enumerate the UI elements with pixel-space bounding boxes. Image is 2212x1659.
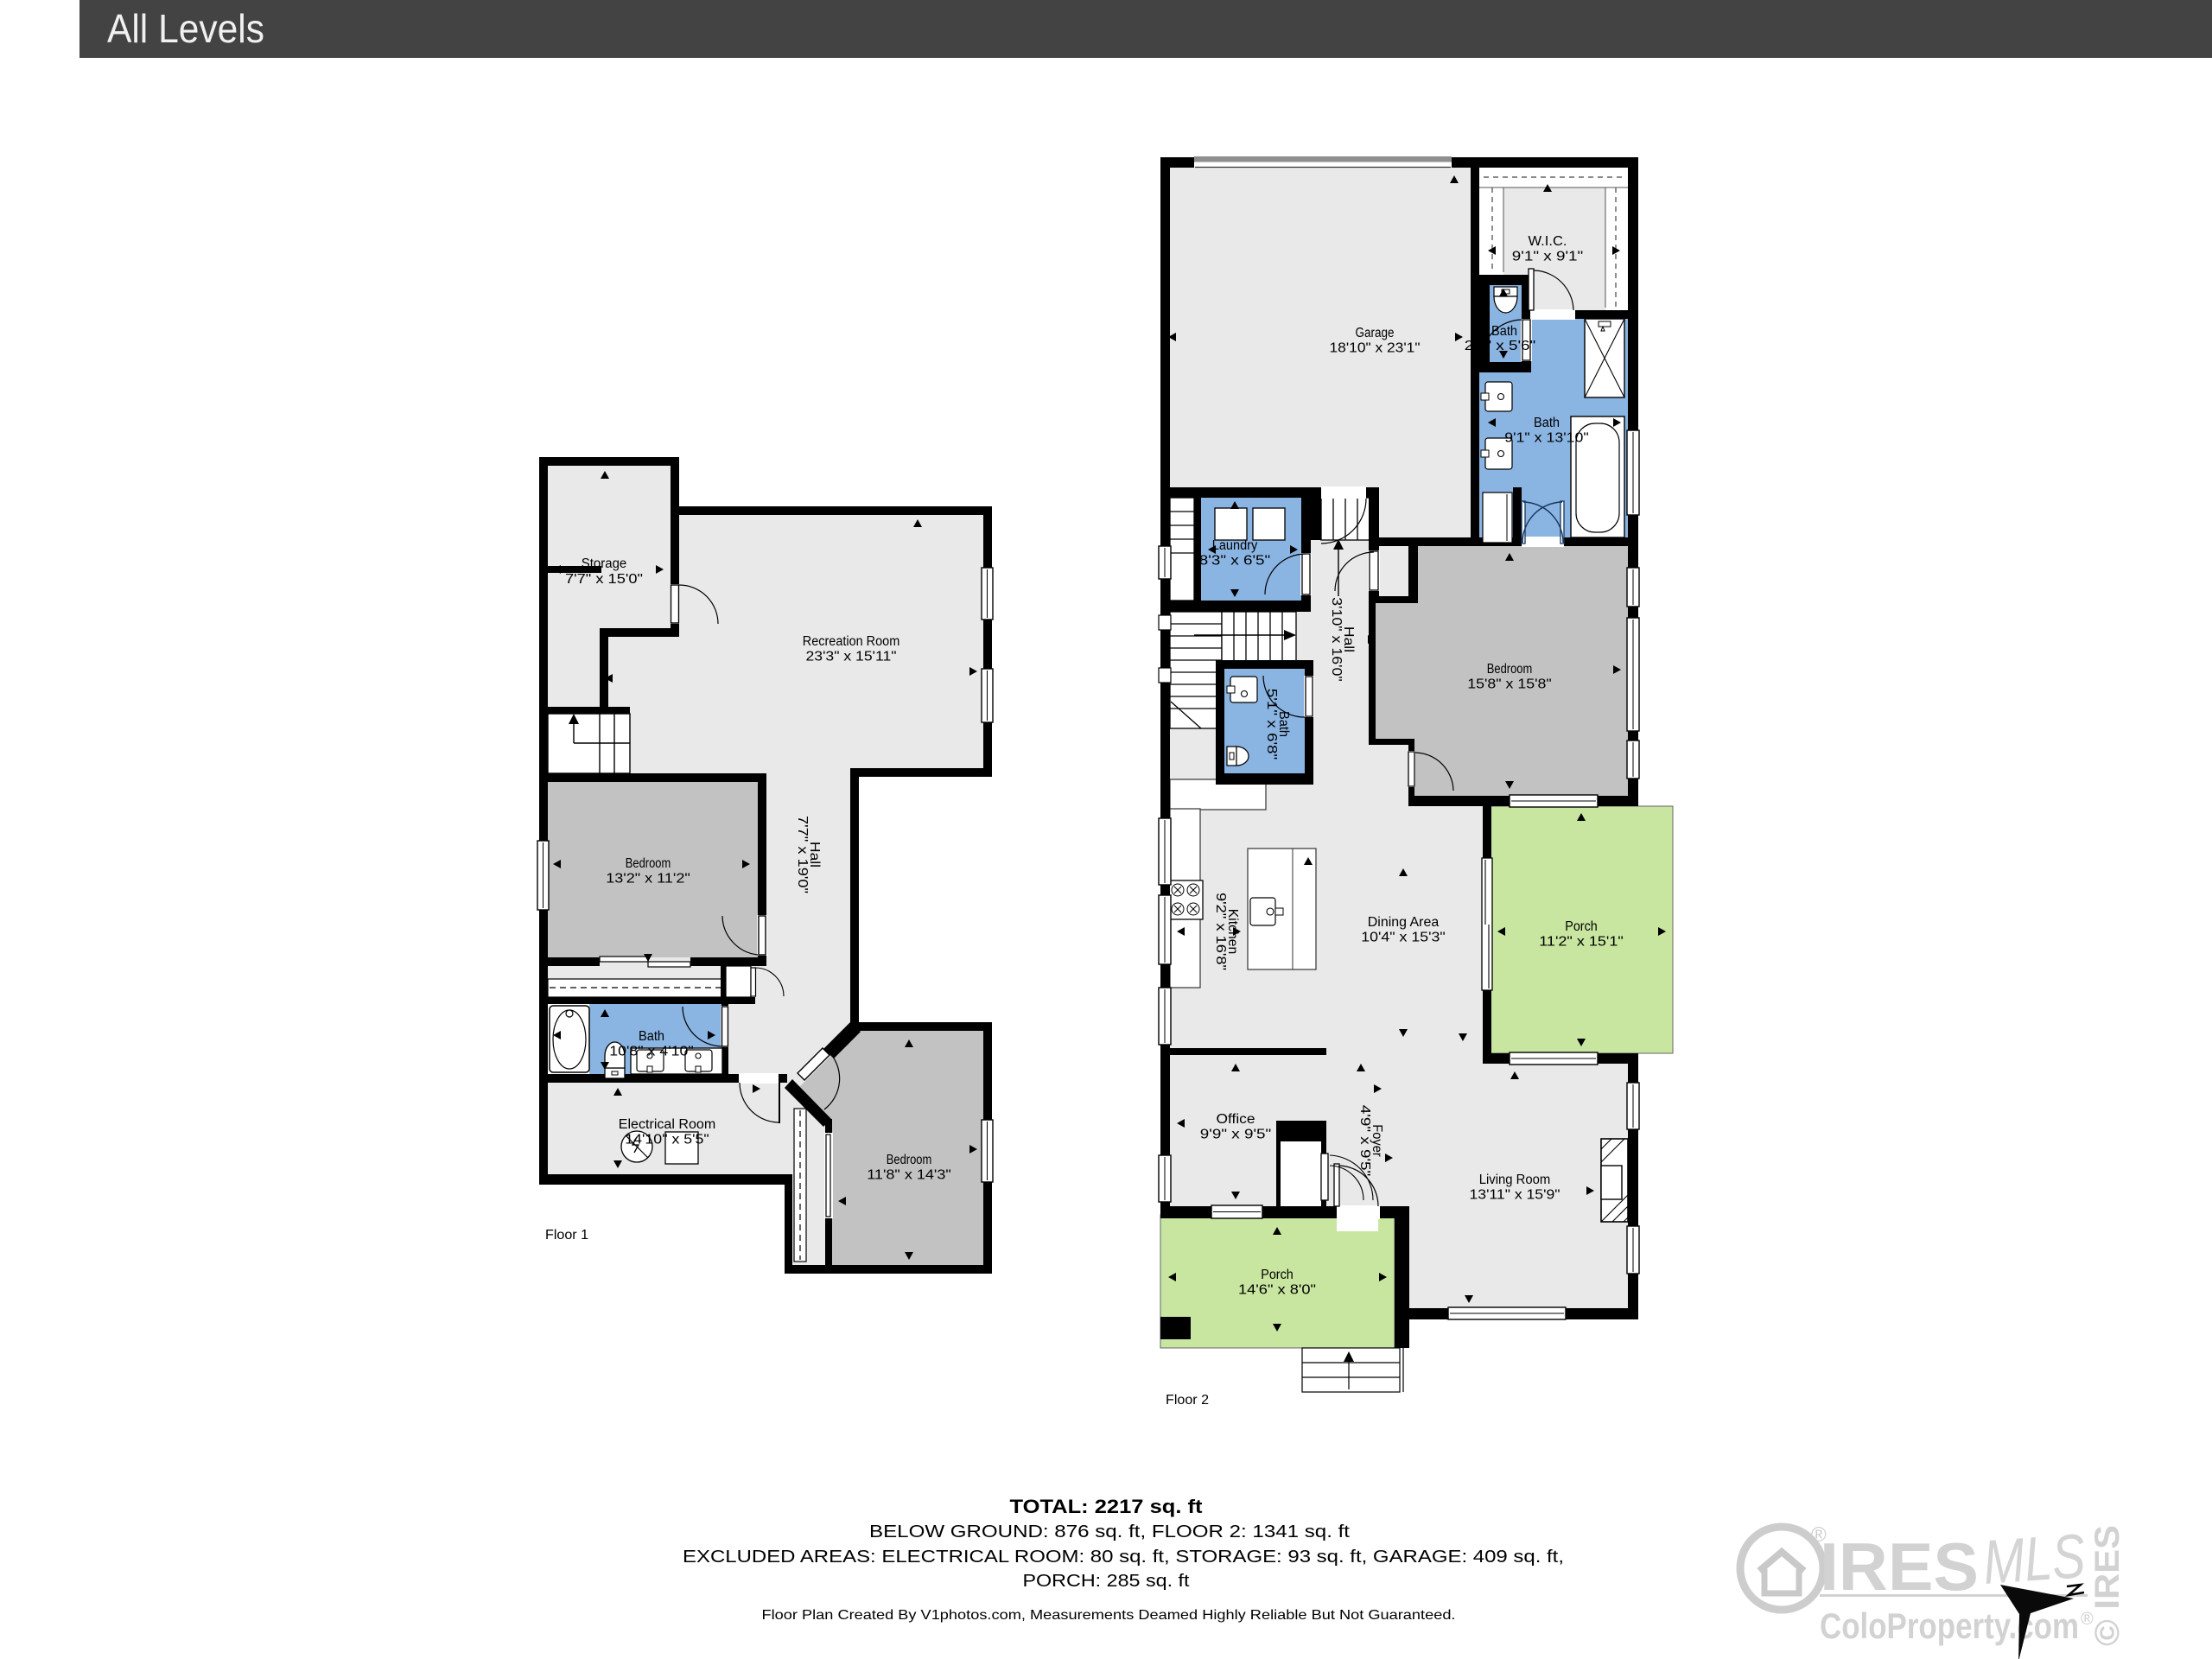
svg-text:8'3" x 6'5": 8'3" x 6'5" xyxy=(1199,554,1271,569)
svg-text:Floor Plan Created By V1photos: Floor Plan Created By V1photos.com, Meas… xyxy=(762,1608,1456,1623)
svg-text:Office: Office xyxy=(1217,1112,1255,1127)
svg-text:18'10" x 23'1": 18'10" x 23'1" xyxy=(1330,341,1421,356)
svg-text:EXCLUDED AREAS: ELECTRICAL ROO: EXCLUDED AREAS: ELECTRICAL ROOM: 80 sq. … xyxy=(683,1548,1564,1567)
svg-text:23'3" x 15'11": 23'3" x 15'11" xyxy=(806,650,897,664)
svg-text:11'2" x 15'1": 11'2" x 15'1" xyxy=(1539,935,1624,950)
svg-text:ColoProperty.com: ColoProperty.com xyxy=(1820,1605,2079,1646)
svg-text:11'8" x 14'3": 11'8" x 14'3" xyxy=(867,1168,951,1183)
svg-text:Bedroom: Bedroom xyxy=(1487,662,1533,677)
svg-text:7'7" x 19'0": 7'7" x 19'0" xyxy=(795,816,810,893)
svg-text:14'6" x 8'0": 14'6" x 8'0" xyxy=(1238,1283,1316,1298)
svg-text:IRES: IRES xyxy=(1820,1529,1979,1605)
svg-text:Electrical Room: Electrical Room xyxy=(619,1117,716,1132)
svg-text:3'10" x 16'0": 3'10" x 16'0" xyxy=(1329,597,1344,682)
svg-text:Bath: Bath xyxy=(1491,324,1517,339)
svg-text:9'1" x 9'1": 9'1" x 9'1" xyxy=(1512,250,1584,264)
svg-text:5'1" x 6'8": 5'1" x 6'8" xyxy=(1264,689,1279,760)
svg-text:BELOW GROUND: 876 sq. ft, FLOO: BELOW GROUND: 876 sq. ft, FLOOR 2: 1341 … xyxy=(869,1522,1351,1541)
svg-text:10'4" x 15'3": 10'4" x 15'3" xyxy=(1361,931,1446,945)
svg-text:Floor 2: Floor 2 xyxy=(1166,1393,1209,1408)
svg-text:Dining Area: Dining Area xyxy=(1368,915,1440,930)
svg-text:Bedroom: Bedroom xyxy=(887,1153,932,1167)
svg-text:Bedroom: Bedroom xyxy=(626,856,671,871)
svg-text:13'11" x 15'9": 13'11" x 15'9" xyxy=(1470,1188,1560,1203)
svg-text:4'9" x 9'5": 4'9" x 9'5" xyxy=(1357,1105,1372,1177)
svg-text:13'2" x 11'2": 13'2" x 11'2" xyxy=(606,872,690,887)
svg-text:10'8" x 4'10": 10'8" x 4'10" xyxy=(609,1045,694,1059)
svg-text:All Levels: All Levels xyxy=(107,6,264,51)
svg-text:Floor 1: Floor 1 xyxy=(545,1228,588,1243)
svg-text:14'10" x 5'5": 14'10" x 5'5" xyxy=(625,1133,709,1147)
svg-text:15'8" x 15'8": 15'8" x 15'8" xyxy=(1467,677,1552,692)
svg-text:9'9" x 9'5": 9'9" x 9'5" xyxy=(1200,1128,1272,1142)
svg-text:Laundry: Laundry xyxy=(1212,538,1258,553)
svg-text:W.I.C.: W.I.C. xyxy=(1529,234,1567,249)
svg-text:PORCH: 285 sq. ft: PORCH: 285 sq. ft xyxy=(1023,1572,1191,1591)
svg-text:Porch: Porch xyxy=(1261,1268,1294,1282)
svg-text:Living Room: Living Room xyxy=(1479,1173,1551,1187)
svg-text:Porch: Porch xyxy=(1565,919,1598,934)
svg-text:Storage: Storage xyxy=(582,556,627,571)
svg-text:TOTAL: 2217 sq. ft: TOTAL: 2217 sq. ft xyxy=(1010,1496,1204,1517)
svg-text:© IRES: © IRES xyxy=(2088,1525,2126,1646)
svg-text:Bath: Bath xyxy=(1534,416,1560,430)
svg-text:9'2" x 16'8": 9'2" x 16'8" xyxy=(1213,893,1228,970)
svg-text:Recreation Room: Recreation Room xyxy=(803,634,900,649)
svg-text:Garage: Garage xyxy=(1356,326,1395,340)
svg-text:Bath: Bath xyxy=(639,1029,664,1044)
svg-text:7'7" x 15'0": 7'7" x 15'0" xyxy=(565,572,643,587)
svg-text:9'1" x 13'10": 9'1" x 13'10" xyxy=(1504,431,1589,446)
